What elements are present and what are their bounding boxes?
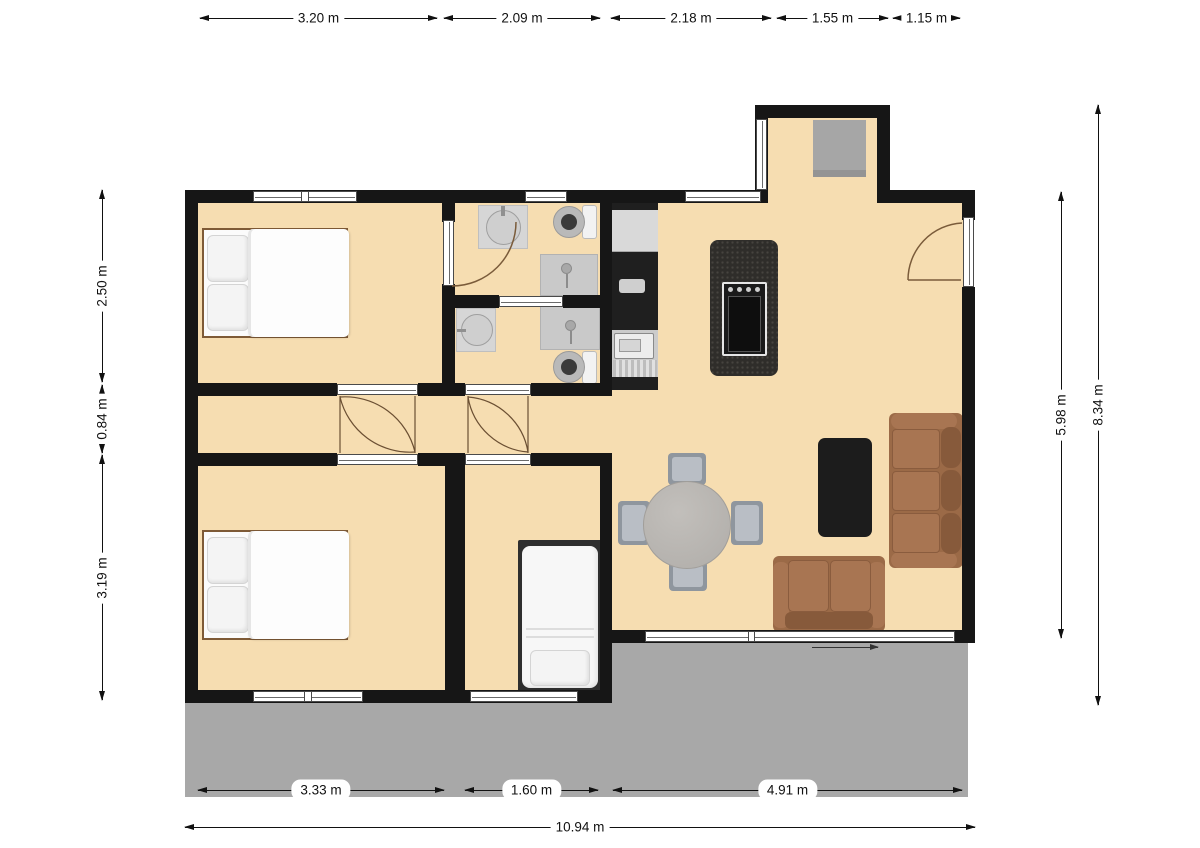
round-dining-table <box>643 481 731 569</box>
slide-direction-arrow-icon <box>812 647 878 648</box>
door-frame-hall <box>337 454 418 465</box>
loveseat <box>773 556 885 632</box>
door-frame-hall <box>337 384 418 395</box>
pillow <box>207 284 249 331</box>
dim-top-1: 3.20 m <box>200 18 437 19</box>
dim-label: 1.55 m <box>807 9 858 28</box>
sofa-back-cushion <box>941 470 961 511</box>
fridge <box>612 210 658 252</box>
sofa-seat <box>892 471 940 511</box>
kitchen-island <box>710 240 778 376</box>
three-seat-sofa <box>889 413 963 568</box>
floor-plan-canvas: 3.20 m 2.09 m 2.18 m 1.55 m 1.15 m 2.50 … <box>0 0 1200 848</box>
toilet-2 <box>553 350 598 386</box>
wall-left <box>185 190 198 703</box>
dim-label: 2.18 m <box>665 9 716 28</box>
pillow <box>530 650 590 686</box>
dim-label: 3.33 m <box>291 780 350 801</box>
sofa-back-cushion <box>941 513 961 554</box>
window-bathroom <box>525 191 567 202</box>
dim-label: 5.98 m <box>1052 389 1071 440</box>
window-single-room <box>470 691 578 702</box>
stove-knob-icon <box>737 287 742 292</box>
sofa-back-cushion <box>941 427 961 468</box>
wall-hall-bottom <box>418 453 465 466</box>
dim-bottom-2: 1.60 m <box>465 790 598 791</box>
wall-single-living <box>600 453 612 643</box>
drainboard <box>613 360 657 377</box>
door-entry <box>963 217 974 287</box>
stove-knob-icon <box>755 287 760 292</box>
wall-hall-top <box>418 383 465 396</box>
dim-right-2: 8.34 m <box>1098 105 1099 705</box>
sofa-seat <box>892 513 940 553</box>
shower-1 <box>540 254 598 296</box>
dim-label: 4.91 m <box>758 780 817 801</box>
duvet <box>248 229 349 337</box>
window-entry <box>756 119 767 190</box>
stove-knob-icon <box>746 287 751 292</box>
dim-bottom-1: 3.33 m <box>198 790 444 791</box>
sliding-door-terrace <box>645 631 955 642</box>
dining-chair <box>731 501 763 545</box>
shower-head-icon <box>561 263 572 274</box>
wall-right <box>962 287 975 643</box>
dim-left-2: 0.84 m <box>102 385 103 453</box>
pillow <box>207 235 249 282</box>
wall-right-upper <box>962 190 975 220</box>
wall-top-right <box>877 190 975 203</box>
faucet-icon <box>457 329 466 332</box>
dim-top-4: 1.55 m <box>777 18 888 19</box>
wall-hall-top <box>185 383 337 396</box>
dim-label: 3.20 m <box>293 9 344 28</box>
double-bed-2 <box>202 530 348 640</box>
dim-bottom-3: 4.91 m <box>613 790 962 791</box>
dim-label: 1.15 m <box>901 9 952 28</box>
dim-label: 10.94 m <box>551 818 610 837</box>
dim-overall-width: 10.94 m <box>185 827 975 828</box>
faucet-icon <box>501 206 505 216</box>
coffee-table-rug <box>818 438 872 537</box>
door-ensuite <box>443 220 454 286</box>
kitchen-counter <box>612 197 658 390</box>
stove <box>722 282 767 356</box>
dim-top-3: 2.18 m <box>611 18 771 19</box>
sofa-back <box>785 612 873 629</box>
dim-label: 8.34 m <box>1089 379 1108 430</box>
dim-label: 2.09 m <box>496 9 547 28</box>
dim-label: 2.50 m <box>93 260 112 311</box>
bathroom-sink-1 <box>478 205 528 249</box>
dim-top-5: 1.15 m <box>893 18 960 19</box>
door-bath-sliding <box>499 296 563 307</box>
wall-bedroom2-divider <box>445 466 465 703</box>
wall-hall-top <box>531 383 612 396</box>
dim-right-1: 5.98 m <box>1061 192 1062 638</box>
wall-entry-top <box>755 105 890 118</box>
oven-unit <box>612 252 658 330</box>
single-bed <box>518 540 602 692</box>
sofa-seat <box>788 560 829 612</box>
wall-hall-bottom <box>185 453 337 466</box>
window-kitchen <box>685 191 761 202</box>
bathroom-sink-2 <box>456 308 496 352</box>
wall-bedroom1-bath <box>442 190 455 222</box>
dim-label: 0.84 m <box>93 393 112 444</box>
dim-left-3: 3.19 m <box>102 455 103 700</box>
sofa-seat <box>830 560 871 612</box>
pillow <box>207 537 249 584</box>
sofa-seat <box>892 429 940 469</box>
shower-2 <box>540 303 600 350</box>
kitchen-sink <box>614 333 654 359</box>
stove-knob-icon <box>728 287 733 292</box>
pillow <box>207 586 249 633</box>
wall-kitchen <box>600 190 612 396</box>
door-frame-hall <box>465 384 531 395</box>
door-frame-hall <box>465 454 531 465</box>
wall-bedroom1-bath <box>442 284 455 396</box>
sofa-armrest <box>891 552 957 568</box>
shower-head-icon <box>565 320 576 331</box>
duvet <box>248 531 349 639</box>
dim-label: 3.19 m <box>93 552 112 603</box>
dim-left-1: 2.50 m <box>102 190 103 382</box>
entry-mat <box>813 120 866 177</box>
wall-entry-right <box>877 105 890 203</box>
dim-top-2: 2.09 m <box>444 18 600 19</box>
toilet-1 <box>553 203 598 241</box>
wall-bath-divider <box>455 295 499 308</box>
dim-label: 1.60 m <box>502 780 561 801</box>
double-bed-1 <box>202 228 348 338</box>
